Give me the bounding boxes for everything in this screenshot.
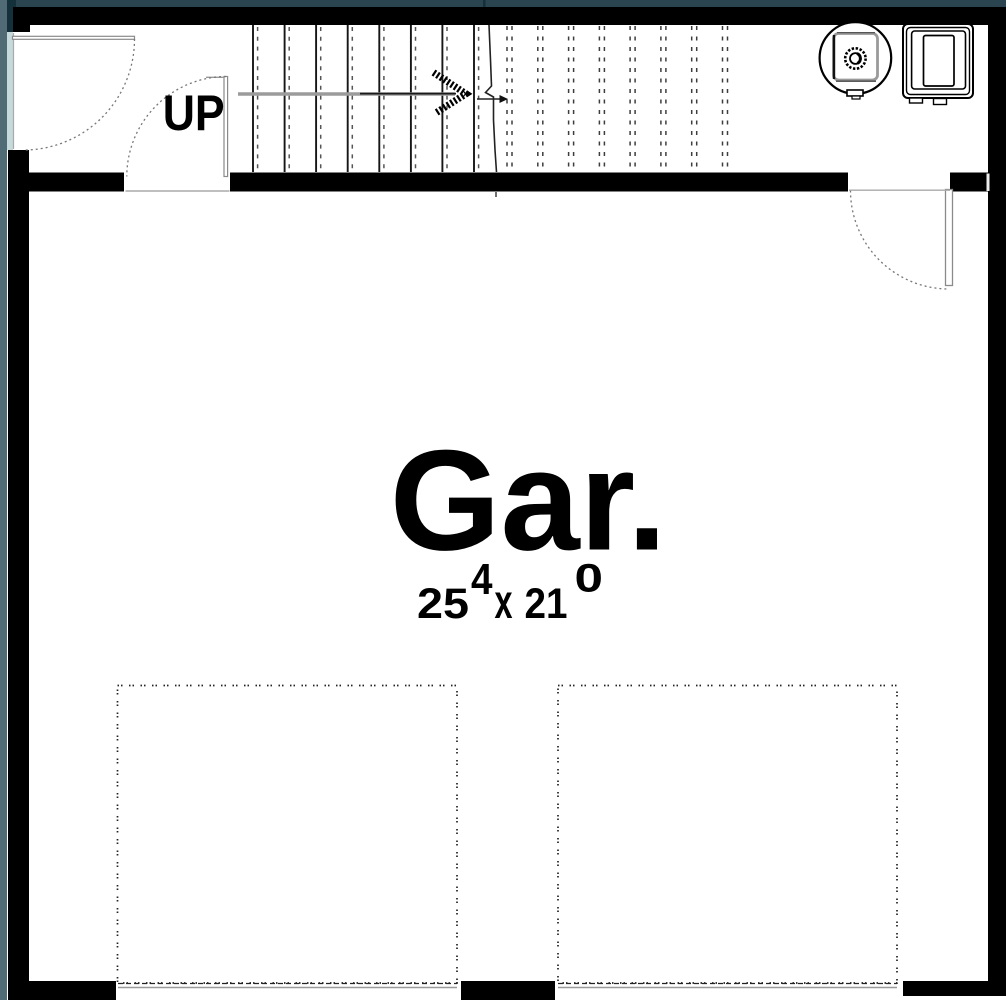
svg-text:0: 0: [575, 557, 604, 601]
svg-text:UP: UP: [163, 84, 225, 141]
svg-text:4: 4: [471, 556, 493, 604]
svg-text:21: 21: [525, 580, 568, 628]
svg-text:x: x: [495, 576, 513, 629]
svg-text:25: 25: [417, 580, 469, 628]
svg-text:Gar.: Gar.: [390, 422, 667, 581]
